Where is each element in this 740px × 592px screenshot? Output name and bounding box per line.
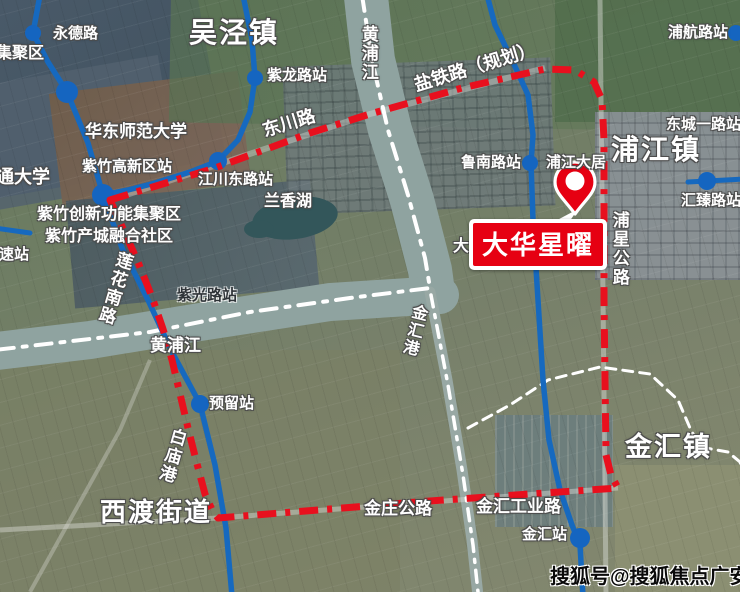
- town-label-jinhui: 金汇镇: [625, 433, 712, 461]
- town-label-wujing: 吴泾镇: [189, 18, 279, 47]
- area-label-pujiang-daju: 浦江大居: [546, 155, 606, 171]
- town-label-pujiang: 浦江镇: [611, 135, 701, 164]
- station-label-yongde: 永德路: [53, 26, 98, 42]
- location-pin-center-dot: [566, 172, 585, 191]
- station-label-puhang: 浦航路站: [668, 25, 728, 41]
- area-label-zizhu-innovation: 紫竹创新功能集聚区: [37, 207, 181, 224]
- metro-line-leftedge: [0, 228, 30, 233]
- project-callout: 大华星曜: [469, 219, 607, 270]
- station-label-jinhui: 金汇站: [522, 527, 567, 543]
- road-label-jinhui-industrial: 金汇工业路: [476, 498, 561, 516]
- water-label-lanxiang: 兰香湖: [264, 194, 312, 211]
- satellite-map: 吴泾镇 浦江镇 金汇镇 西渡街道 永德路 紫龙路站 江川东路站 紫竹高新区站 紫…: [0, 0, 740, 592]
- lanxiang-lake-lobe: [244, 220, 274, 238]
- area-label-zizhu-city: 紫竹产城融合社区: [45, 229, 173, 246]
- town-label-xidu: 西渡街道: [100, 499, 212, 526]
- station-label-jiangchuandong: 江川东路站: [198, 172, 273, 188]
- station-label-dongcheng: 东城一路站: [666, 117, 740, 133]
- road-xidu-diagonal: [30, 360, 150, 592]
- station-label-huizhen: 汇臻路站: [681, 193, 740, 209]
- area-label-ecnu: 华东师范大学: [85, 123, 187, 141]
- watermark-text: 搜狐号@搜狐焦点广安站: [550, 560, 740, 589]
- area-label-jiaotong-clipped: 交通大学: [0, 168, 50, 187]
- water-label-dazhihe-partial: 大: [453, 239, 469, 256]
- station-label-gaosu-clipped: 高速站: [0, 247, 29, 263]
- station-label-lunan: 鲁南路站: [461, 155, 521, 171]
- station-label-ziguang: 紫光路站: [177, 288, 237, 304]
- station-label-yuliu: 预留站: [209, 396, 254, 412]
- station-label-zizhu-hitech: 紫竹高新区站: [82, 159, 172, 175]
- water-label-huangpu-vertical: 黄浦江: [359, 25, 377, 82]
- road-label-puxing: 浦星公路: [610, 211, 628, 287]
- area-label-jijuqu-clipped: 集聚区: [0, 46, 44, 63]
- road-label-jinzhuang: 金庄公路: [364, 500, 432, 518]
- water-label-huangpu-horizontal: 黄浦江: [150, 337, 201, 355]
- project-callout-label: 大华星曜: [473, 223, 603, 266]
- station-label-zilong: 紫龙路站: [267, 68, 327, 84]
